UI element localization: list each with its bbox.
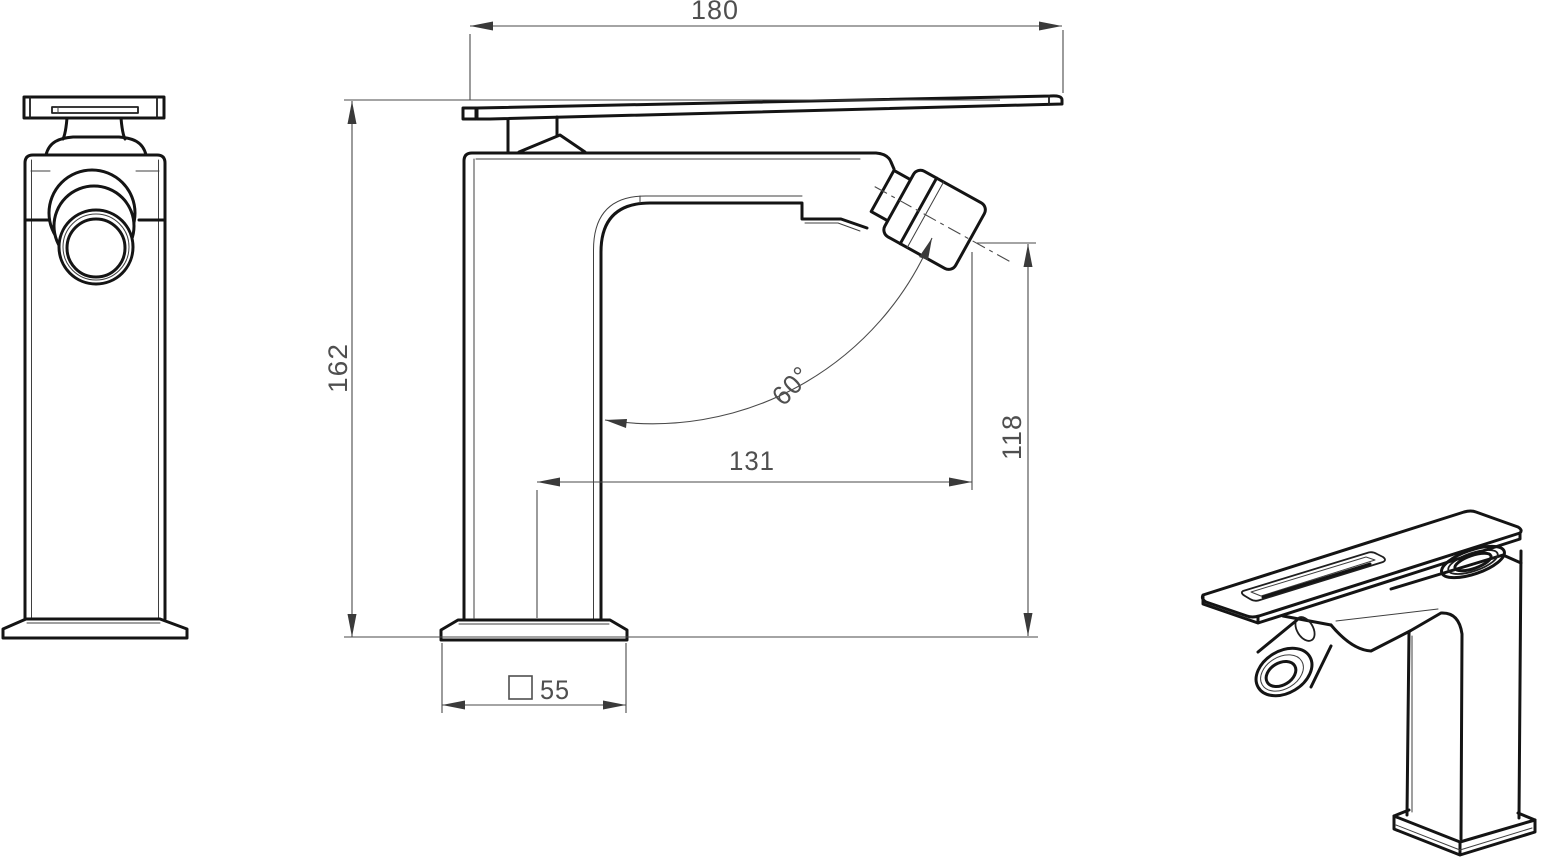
spray-angle-arc	[605, 238, 932, 424]
arrowhead	[949, 478, 972, 487]
side-body-underside	[601, 203, 867, 619]
arrowhead	[1024, 613, 1033, 636]
persp-base-sides	[1394, 816, 1535, 855]
arrowhead	[537, 478, 560, 487]
front-view	[3, 97, 187, 638]
side-stem-wedge	[519, 135, 585, 152]
dim-text-aerator-height: 118	[997, 414, 1027, 460]
side-lever-tip	[463, 108, 476, 119]
arrowhead	[605, 419, 627, 428]
arrowhead	[1039, 22, 1062, 31]
persp-arm-underside	[1331, 625, 1410, 651]
persp-column-right-edge	[1519, 551, 1521, 818]
dim-text-spout-projection: 131	[729, 446, 775, 476]
front-nozzle-face-circle	[59, 210, 133, 284]
arrowhead	[603, 701, 626, 710]
arrowhead	[1024, 244, 1033, 267]
dim-text-overall-height: 162	[323, 343, 353, 393]
side-lever-plate	[477, 96, 1062, 119]
front-dome	[46, 137, 146, 155]
dim-text-spray-angle: 60°	[766, 360, 817, 411]
side-view	[441, 96, 1062, 640]
dim-line-55	[442, 643, 626, 713]
front-lever-slot	[52, 107, 138, 113]
side-nozzle-group	[857, 154, 1029, 295]
persp-nozzle-face	[1247, 639, 1320, 706]
dim-text-base-width: 55	[540, 675, 570, 705]
arrowhead	[348, 614, 357, 637]
arrowhead	[470, 22, 493, 31]
arrowhead	[348, 101, 357, 124]
square-section-symbol-icon	[509, 676, 532, 699]
technical-drawing-canvas: 180 162 131 118 60° 55	[0, 0, 1550, 861]
faucet-technical-drawing: 180 162 131 118 60° 55	[0, 0, 1550, 861]
arrowhead	[442, 701, 465, 710]
persp-column-left-edge	[1407, 632, 1409, 815]
front-base-plate	[3, 619, 187, 638]
dim-text-lever-length: 180	[691, 0, 739, 25]
perspective-view	[1202, 511, 1535, 855]
persp-column-front-corner	[1410, 613, 1462, 839]
dim-line-180	[470, 26, 1063, 100]
